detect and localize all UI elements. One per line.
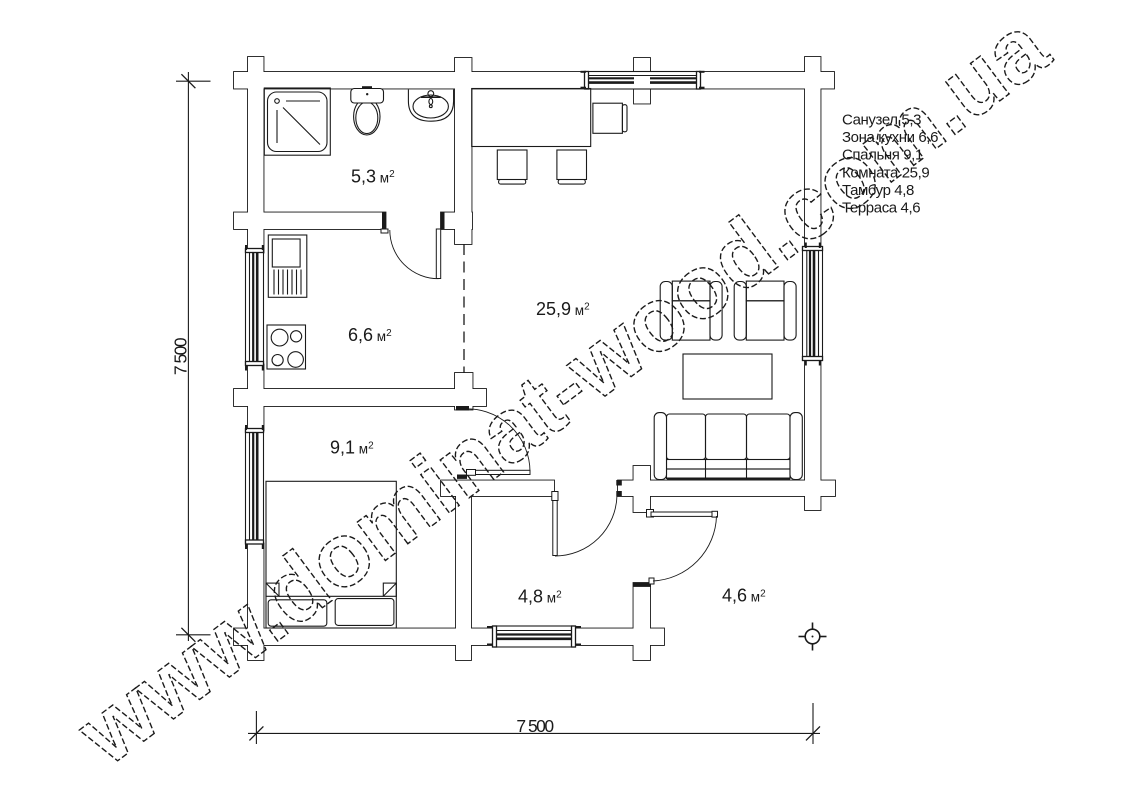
svg-text:4,8 м2: 4,8 м2 <box>518 587 562 607</box>
svg-text:6,6 м2: 6,6 м2 <box>348 325 392 345</box>
svg-text:www.dominat-wood.com.ua: www.dominat-wood.com.ua <box>59 0 1066 785</box>
svg-text:4,6 м2: 4,6 м2 <box>722 586 766 606</box>
svg-text:9,1 м2: 9,1 м2 <box>330 438 374 458</box>
svg-text:7 500: 7 500 <box>516 716 554 736</box>
svg-text:7 500: 7 500 <box>171 337 191 375</box>
svg-text:5,3 м2: 5,3 м2 <box>351 166 395 186</box>
